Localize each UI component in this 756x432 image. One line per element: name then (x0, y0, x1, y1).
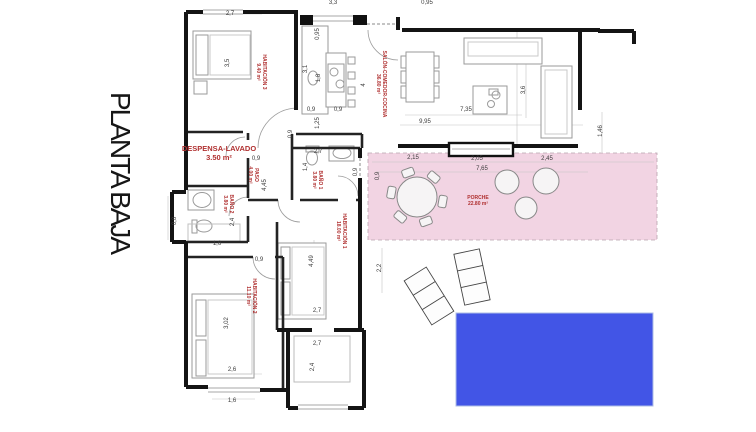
dimension-label: 4 (361, 83, 367, 86)
dimension-label: 2,7 (314, 149, 322, 155)
room-label-paso: PASO 4.00 m² (247, 166, 259, 183)
dimension-label: 3,5 (225, 59, 231, 67)
dimension-label: 0,9 (307, 107, 315, 113)
dimension-label: 7,35 (460, 107, 472, 113)
room-label-habitacion-1: HABITACIÓN 1 18.00 m² (335, 213, 347, 248)
dimension-label: 3,6 (521, 86, 527, 94)
dimension-label: 1,4 (303, 163, 309, 171)
dimension-label: 0,95 (421, 0, 433, 6)
dimension-label: 0,9 (255, 257, 263, 263)
dimension-label: 2,15 (407, 155, 419, 161)
dimension-label: 3,1 (303, 65, 309, 73)
dimension-label: 2,4 (230, 218, 236, 226)
dimension-label: 0,9 (375, 172, 381, 180)
dimension-label: 9,95 (419, 119, 431, 125)
room-label-salon-comedor-cocina: SALÓN-COMEDOR-COCINA 36.80 m² (375, 51, 387, 118)
dimension-label: 2,05 (471, 156, 483, 162)
room-label-porche: PORCHE 22.80 m² (467, 195, 488, 207)
dimension-label: 2,4 (310, 363, 316, 371)
dimension-label: 4,49 (309, 255, 315, 267)
dimension-label: 1,25 (315, 117, 321, 129)
dimension-label: 0,95 (315, 28, 321, 40)
dimension-label: 0,9 (353, 168, 359, 176)
dimension-label: 4,45 (262, 179, 268, 191)
room-label-despensa-lavado: DESPENSA-LAVADO 3.50 m² (182, 144, 256, 162)
dimension-label: 1,46 (598, 125, 604, 137)
dimension-label: 1,6 (213, 241, 221, 247)
dimension-label: 2,45 (541, 156, 553, 162)
dimension-label: 2,7 (313, 308, 321, 314)
dimension-label: 2,7 (226, 11, 234, 17)
floor-plan-page: PLANTA BAJA 2,73,30,950,953,53,11,840,90… (0, 0, 756, 432)
dimension-label: 0,9 (288, 130, 294, 138)
dimension-label: 0,8 (172, 217, 178, 225)
dimension-label: 1,6 (228, 398, 236, 404)
dimension-label: 2,7 (313, 341, 321, 347)
labels-layer: 2,73,30,950,953,53,11,840,90,91,250,97,3… (0, 0, 756, 432)
dimension-label: 3,3 (329, 0, 337, 6)
dimension-label: 2,6 (228, 367, 236, 373)
room-label-habitacion-3: HABITACIÓN 3 9.40 m² (255, 54, 267, 89)
room-label-bano-2: BAÑO 2 3.80 m² (222, 195, 234, 214)
dimension-label: 7,65 (476, 166, 488, 172)
room-label-bano-1: BAÑO 1 3.80 m² (311, 171, 323, 190)
room-label-habitacion-2: HABITACIÓN 2 11.10 m² (245, 278, 257, 313)
dimension-label: 2,2 (377, 264, 383, 272)
dimension-label: 1,8 (316, 74, 322, 82)
dimension-label: 0,9 (334, 107, 342, 113)
dimension-label: 3,02 (224, 317, 230, 329)
